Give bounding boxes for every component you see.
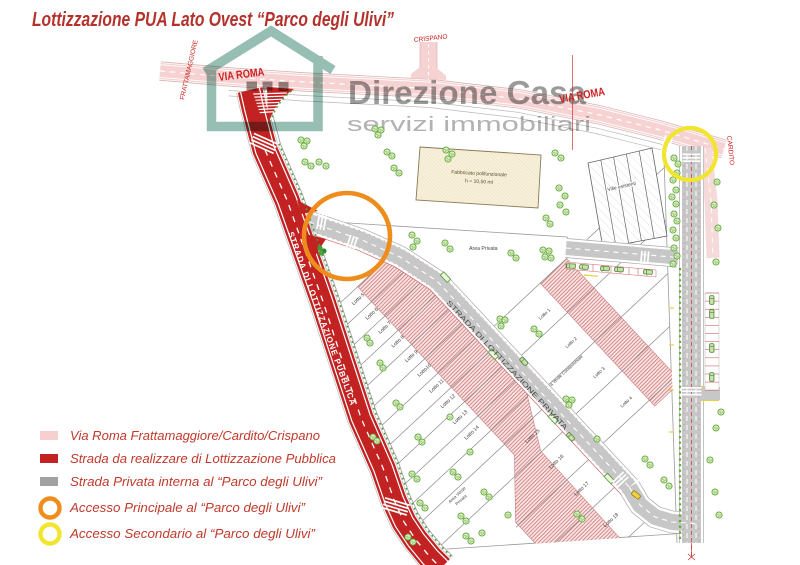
svg-text:Area Privata: Area Privata xyxy=(469,246,498,252)
svg-text:servizi immobiliari: servizi immobiliari xyxy=(347,113,591,136)
svg-text:Accesso Principale al “Parco d: Accesso Principale al “Parco degli Ulivi… xyxy=(69,500,306,515)
svg-text:Accesso Secondario al “Parco d: Accesso Secondario al “Parco degli Ulivi… xyxy=(69,526,316,541)
svg-text:Strada Privata interna al “Par: Strada Privata interna al “Parco degli U… xyxy=(70,474,323,489)
svg-text:Direzione Casa: Direzione Casa xyxy=(348,74,587,111)
svg-text:Lottizzazione PUA Lato Ovest “: Lottizzazione PUA Lato Ovest “Parco degl… xyxy=(32,9,394,31)
svg-text:Strada da realizzare di Lottiz: Strada da realizzare di Lottizzazione Pu… xyxy=(70,451,336,466)
svg-text:Via Roma Frattamaggiore/Cardit: Via Roma Frattamaggiore/Cardito/Crispano xyxy=(70,428,320,443)
